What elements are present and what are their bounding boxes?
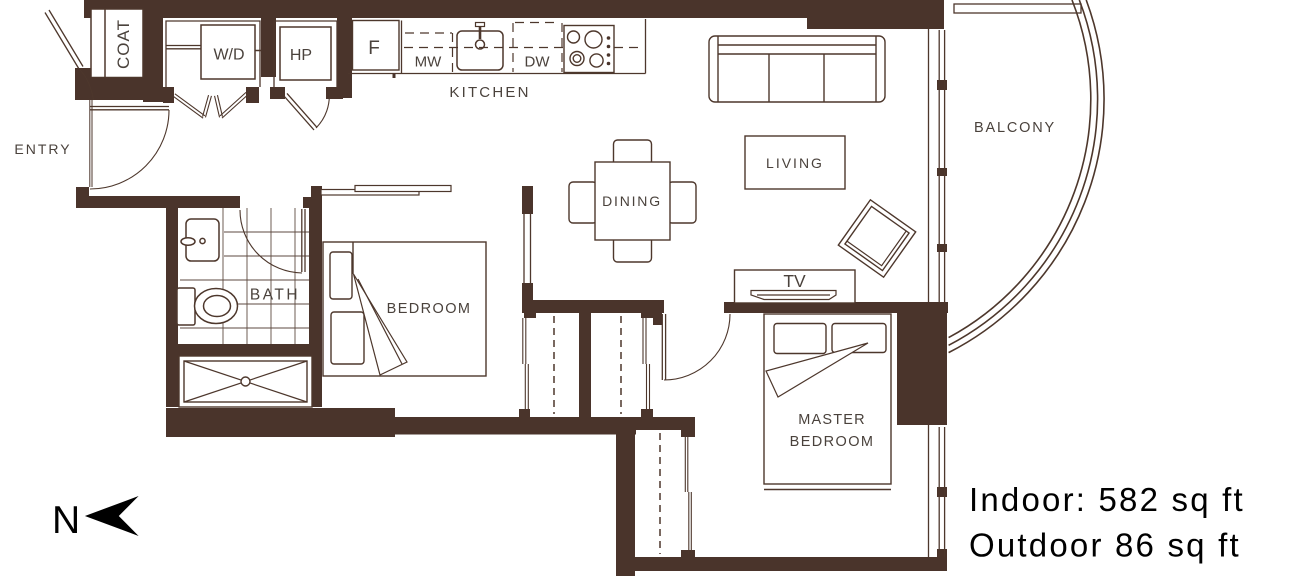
svg-text:Indoor: 582 sq ft: Indoor: 582 sq ft: [969, 481, 1245, 518]
svg-text:MW: MW: [415, 54, 442, 71]
svg-text:BEDROOM: BEDROOM: [790, 434, 875, 450]
svg-text:F: F: [368, 38, 380, 59]
svg-text:LIVING: LIVING: [766, 155, 824, 171]
svg-text:BEDROOM: BEDROOM: [387, 301, 472, 317]
svg-text:DINING: DINING: [602, 193, 662, 209]
svg-text:N: N: [52, 499, 80, 542]
svg-text:KITCHEN: KITCHEN: [449, 84, 530, 101]
svg-text:Outdoor 86 sq ft: Outdoor 86 sq ft: [969, 527, 1241, 564]
svg-text:MASTER: MASTER: [798, 412, 866, 428]
svg-text:COAT: COAT: [114, 19, 133, 69]
svg-text:BALCONY: BALCONY: [974, 120, 1056, 136]
svg-text:TV: TV: [783, 271, 806, 291]
svg-text:W/D: W/D: [213, 47, 244, 64]
svg-text:DW: DW: [525, 54, 551, 71]
svg-text:ENTRY: ENTRY: [14, 141, 71, 157]
svg-text:HP: HP: [290, 47, 312, 64]
svg-text:BATH: BATH: [250, 287, 300, 304]
